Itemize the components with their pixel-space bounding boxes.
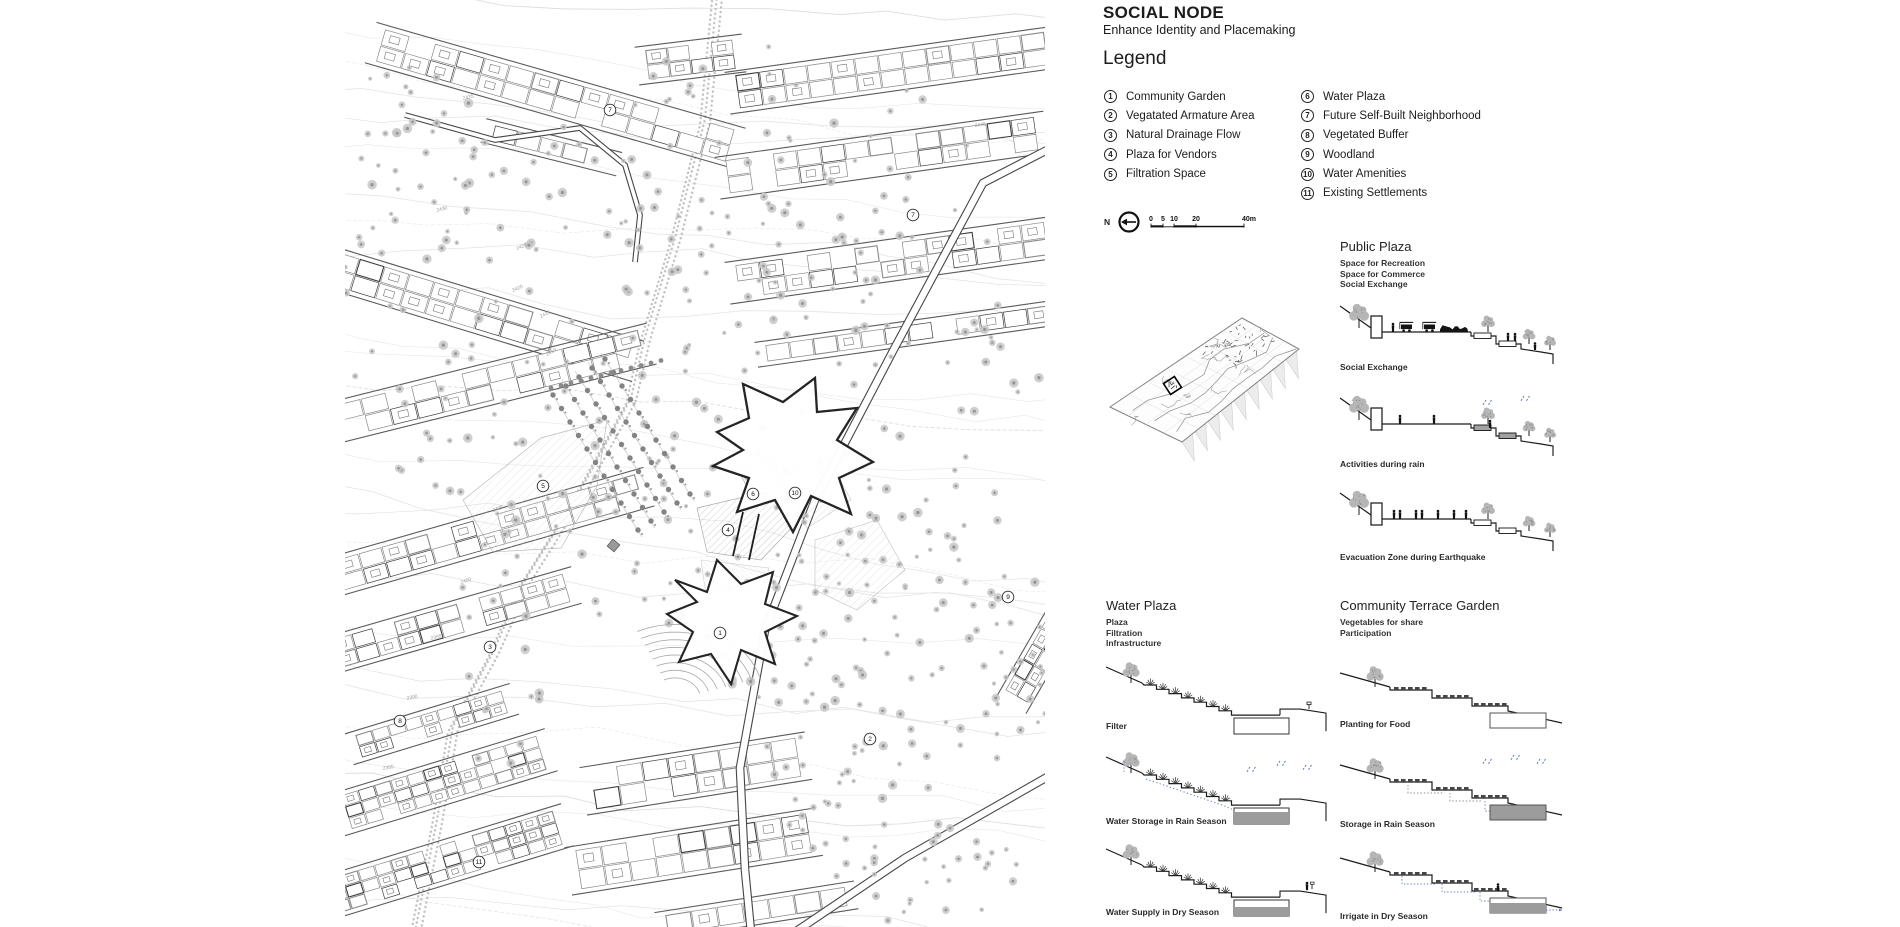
contour-elevation-label: 2395 [430, 633, 442, 642]
map-marker: 5 [537, 480, 549, 492]
svg-text:2: 2 [868, 736, 872, 743]
presentation-board: 7756104931821124352445243024252420241524… [0, 0, 1900, 927]
legend-item-number: 3 [1104, 129, 1117, 142]
scale-tick-label: 10 [1170, 216, 1178, 223]
scale-tick-label: 5 [1161, 216, 1165, 223]
section-diagram-social-exchange [1338, 300, 1564, 364]
section-caption: Filter [1106, 721, 1127, 731]
svg-text:3: 3 [488, 644, 492, 651]
map-marker: 11 [473, 856, 485, 868]
legend-column-1: 1Community Garden 2Vegatated Armature Ar… [1104, 90, 1255, 181]
map-marker: 10 [789, 487, 801, 499]
section-diagram-activities-during-rain [1338, 392, 1564, 456]
legend-item-label: Vegatated Armature Area [1126, 110, 1255, 122]
map-marker: 7 [604, 104, 616, 116]
map-marker: 6 [747, 488, 759, 500]
legend-item-number: 6 [1301, 90, 1314, 103]
svg-text:8: 8 [398, 718, 402, 725]
section-group-subtitles: Vegetables for share Participation [1340, 617, 1423, 638]
legend-item-number: 5 [1104, 168, 1117, 181]
legend-item: 7Future Self-Built Neighborhood [1301, 109, 1481, 122]
section-caption: Storage in Rain Season [1340, 819, 1435, 829]
contour-elevation-label: 2430 [436, 205, 449, 214]
legend-item: 8Vegetated Buffer [1301, 129, 1481, 142]
svg-text:10: 10 [791, 490, 799, 497]
section-group-subtitles: Space for Recreation Space for Commerce … [1340, 258, 1425, 290]
legend-item-label: Water Amenities [1323, 168, 1406, 180]
legend-item-number: 4 [1104, 148, 1117, 161]
scale-bar: 0 5 10 20 40m [1146, 211, 1276, 233]
legend-item: 3Natural Drainage Flow [1104, 129, 1255, 142]
svg-text:11: 11 [476, 859, 483, 866]
scale-tick-label: 20 [1192, 216, 1200, 223]
section-diagram-water-storage-rain [1104, 751, 1330, 825]
section-caption: Planting for Food [1340, 719, 1410, 729]
legend-item-number: 2 [1104, 109, 1117, 122]
site-plan-map: 7756104931821124352445243024252420241524… [345, 0, 1045, 927]
legend-item-number: 11 [1301, 187, 1314, 200]
north-compass-icon [1116, 209, 1142, 235]
section-group-subtitles: Plaza Filtration Infrastructure [1106, 617, 1161, 649]
section-caption: Evacuation Zone during Earthquake [1340, 552, 1485, 562]
legend-item-number: 8 [1301, 129, 1314, 142]
scale-end-label: 40m [1242, 216, 1256, 223]
section-group-title-community-terrace-garden: Community Terrace Garden [1340, 598, 1499, 613]
section-diagram-evacuation-zone [1338, 487, 1564, 551]
legend-item-label: Natural Drainage Flow [1126, 129, 1240, 141]
legend-item: 5Filtration Space [1104, 168, 1255, 181]
legend-item-label: Water Plaza [1323, 91, 1385, 103]
svg-text:7: 7 [608, 107, 612, 114]
legend-item-number: 10 [1301, 168, 1314, 181]
legend-item: 1Community Garden [1104, 90, 1255, 103]
svg-text:4: 4 [726, 527, 730, 534]
map-marker: 4 [722, 524, 734, 536]
legend-item: 9Woodland [1301, 148, 1481, 161]
scale-tick-label: 0 [1149, 216, 1153, 223]
section-caption: Activities during rain [1340, 459, 1425, 469]
legend-item: 4Plaza for Vendors [1104, 148, 1255, 161]
section-caption: Water Storage in Rain Season [1106, 816, 1227, 826]
contour-elevation-label: 2385 [382, 764, 394, 772]
north-label: N [1104, 217, 1110, 227]
section-group-title-water-plaza: Water Plaza [1106, 598, 1176, 613]
page-title: SOCIAL NODE [1103, 3, 1224, 23]
section-diagram-irrigate-dry-season [1338, 846, 1564, 920]
legend-item-label: Future Self-Built Neighborhood [1323, 110, 1481, 122]
legend-column-2: 6Water Plaza 7Future Self-Built Neighbor… [1301, 90, 1481, 200]
svg-text:9: 9 [1006, 594, 1010, 601]
legend-item-label: Vegetated Buffer [1323, 129, 1408, 141]
contour-elevation-labels: 2435244524302425242024152410240524002395… [382, 93, 986, 772]
section-group-title-public-plaza: Public Plaza [1340, 239, 1412, 254]
legend-item: 6Water Plaza [1301, 90, 1481, 103]
legend-item: 10Water Amenities [1301, 168, 1481, 181]
svg-text:7: 7 [911, 212, 915, 219]
axonometric-site-locator [1100, 300, 1312, 468]
legend-item-label: Filtration Space [1126, 168, 1206, 180]
legend-heading: Legend [1103, 48, 1166, 70]
section-caption: Water Supply in Dry Season [1106, 907, 1219, 917]
contour-elevation-label: 2425 [516, 242, 529, 252]
contour-elevation-label: 2420 [511, 284, 524, 294]
svg-text:5: 5 [541, 483, 545, 490]
svg-text:1: 1 [718, 630, 722, 637]
legend-item-number: 1 [1104, 90, 1117, 103]
section-diagram-storage-rain-season [1338, 753, 1564, 827]
legend-item-label: Existing Settlements [1323, 187, 1427, 199]
section-caption: Social Exchange [1340, 362, 1408, 372]
page-subtitle: Enhance Identity and Placemaking [1103, 23, 1296, 37]
legend-item-number: 7 [1301, 109, 1314, 122]
legend-item-label: Plaza for Vendors [1126, 149, 1217, 161]
map-marker: 9 [1002, 591, 1014, 603]
legend-item: 11Existing Settlements [1301, 187, 1481, 200]
legend-item-label: Woodland [1323, 149, 1375, 161]
map-marker: 8 [394, 715, 406, 727]
section-caption: Irrigate in Dry Season [1340, 911, 1428, 921]
section-diagram-filter [1104, 661, 1330, 735]
legend-item-label: Community Garden [1126, 91, 1226, 103]
map-marker: 7 [907, 209, 919, 221]
contour-elevation-label: 2390 [406, 694, 418, 702]
legend-item: 2Vegatated Armature Area [1104, 109, 1255, 122]
section-diagram-water-supply-dry [1104, 843, 1330, 917]
contour-elevation-label: 2400 [460, 577, 473, 586]
contour-elevation-label: 2435 [462, 93, 474, 102]
svg-text:6: 6 [751, 491, 755, 498]
contour-elevation-label: 2415 [539, 309, 552, 320]
map-marker: 1 [714, 627, 726, 639]
map-marker: 3 [484, 641, 496, 653]
legend-item-number: 9 [1301, 148, 1314, 161]
map-marker: 2 [864, 733, 876, 745]
